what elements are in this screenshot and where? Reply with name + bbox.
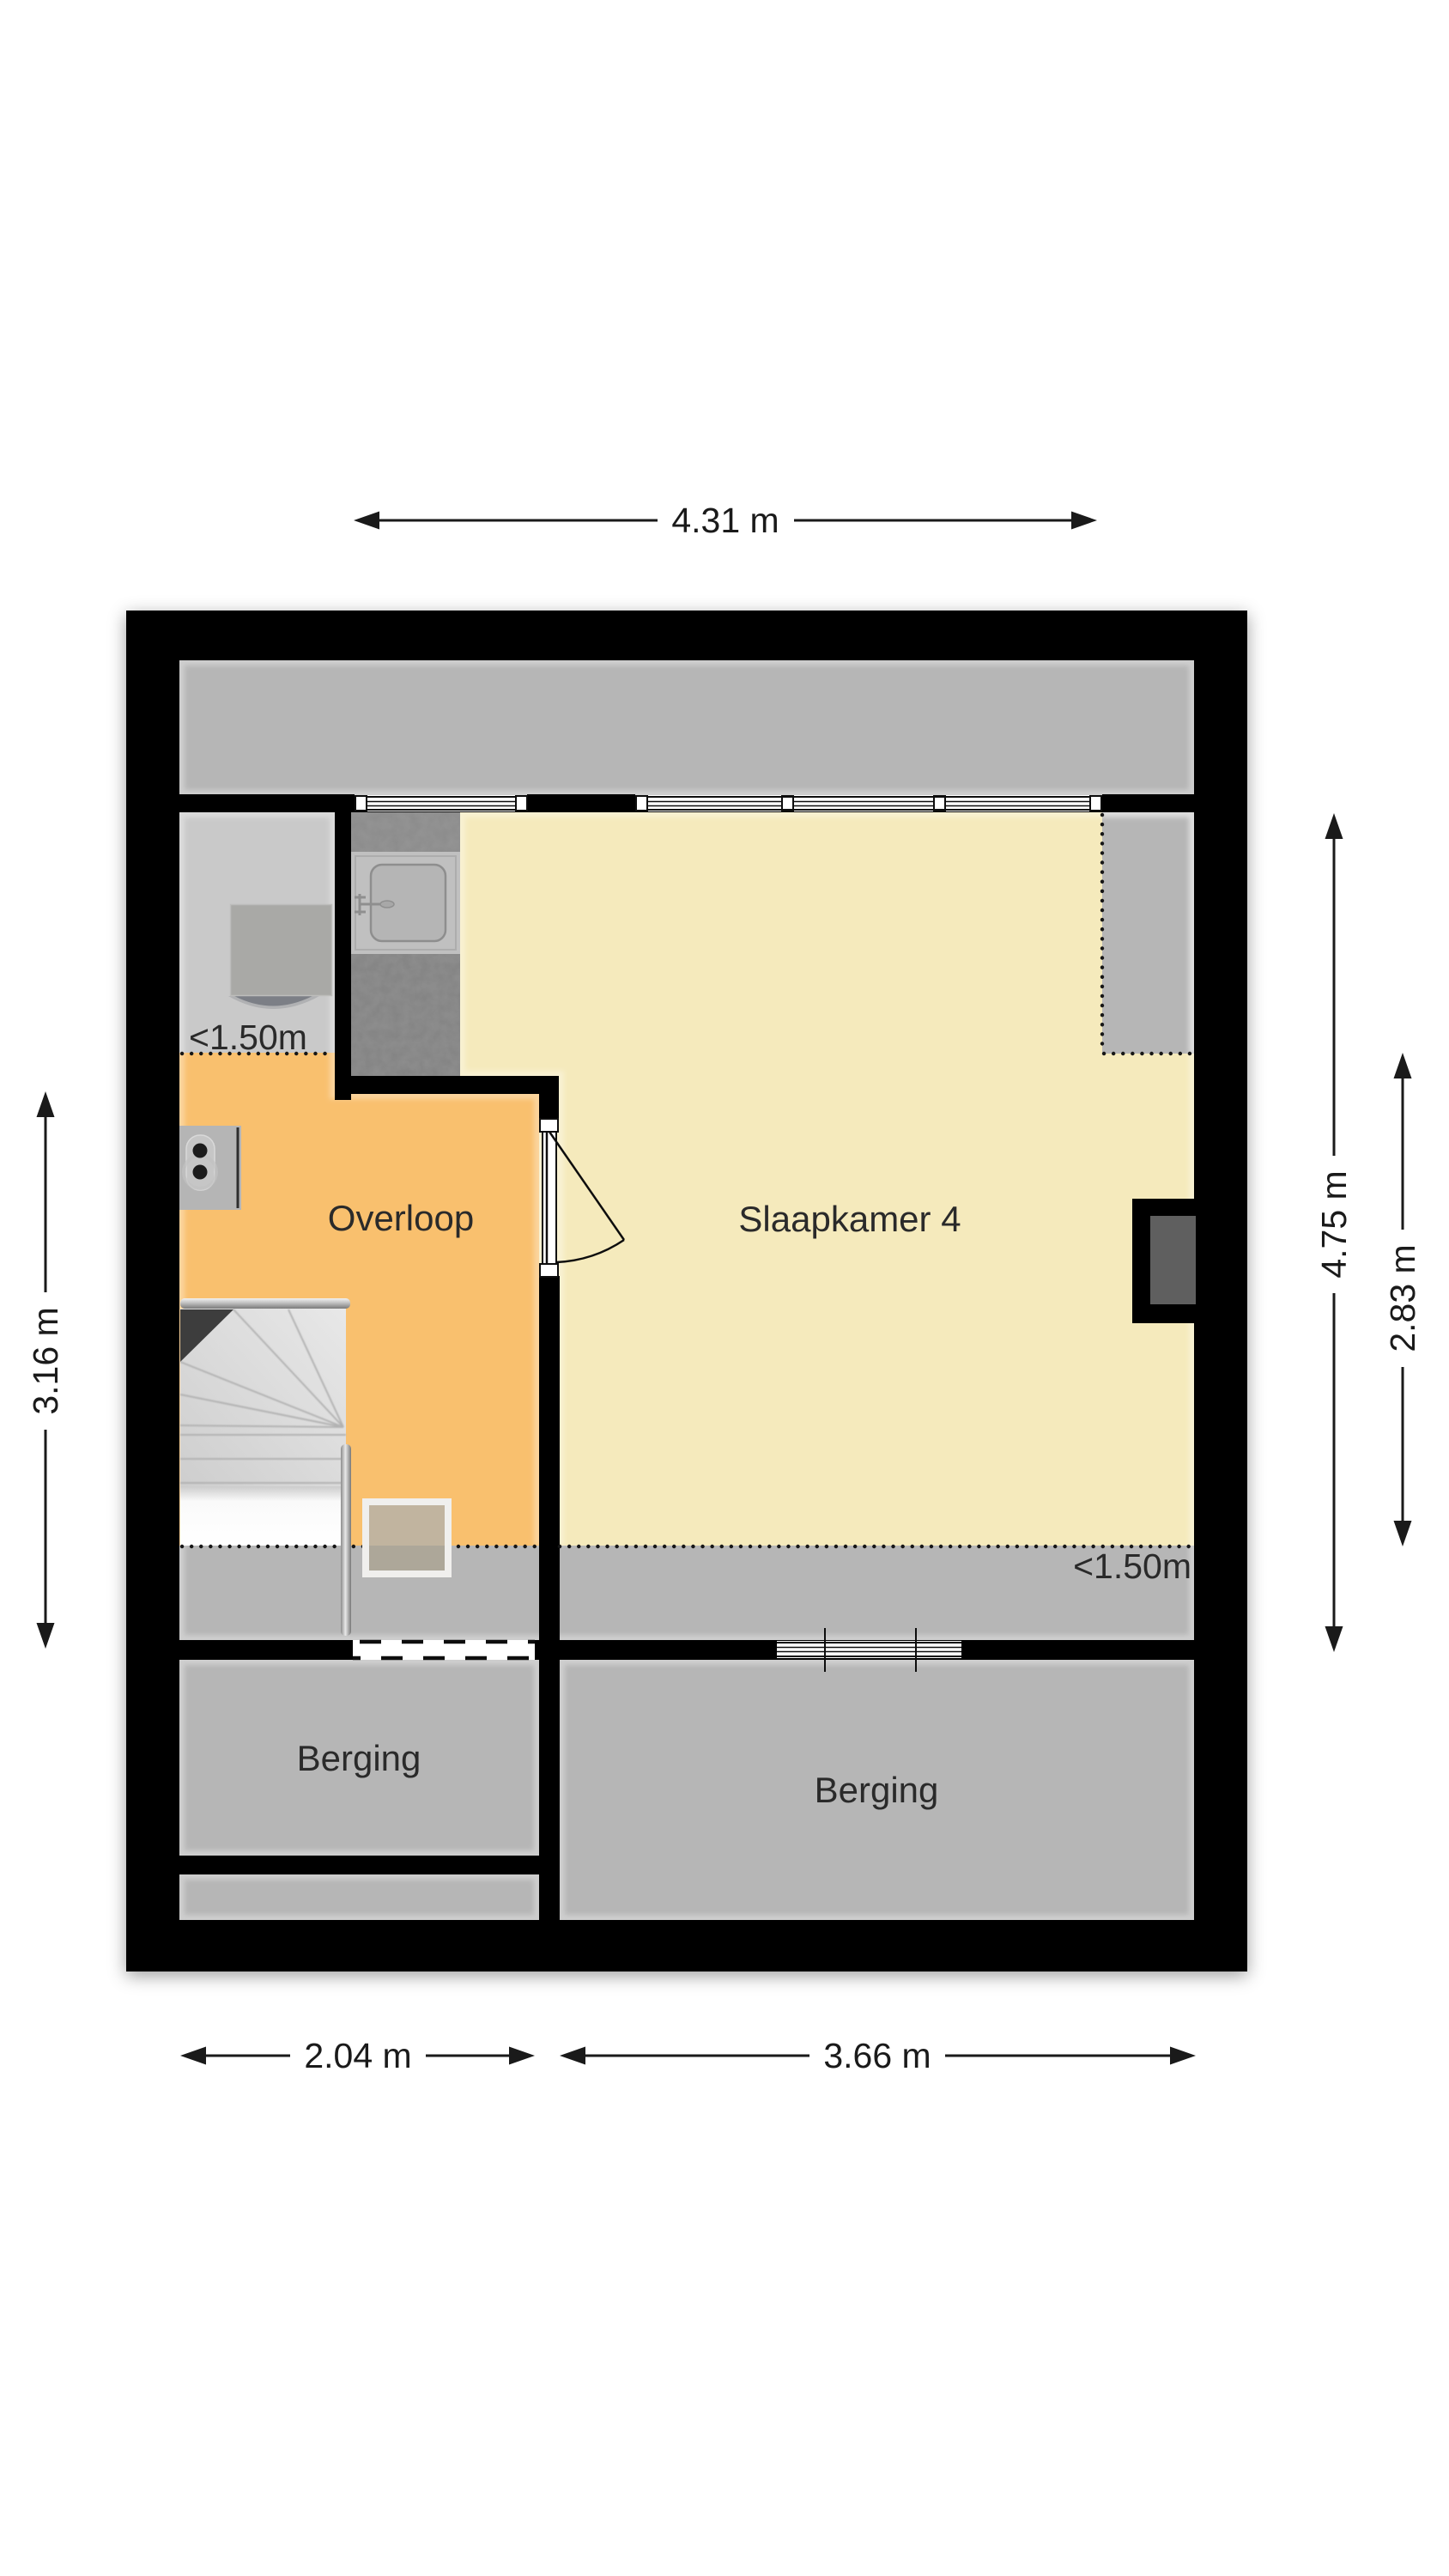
svg-text:Overloop: Overloop bbox=[328, 1198, 474, 1238]
svg-text:4.31 m: 4.31 m bbox=[671, 501, 779, 540]
svg-text:<1.50m: <1.50m bbox=[1073, 1546, 1191, 1586]
svg-text:4.75 m: 4.75 m bbox=[1314, 1170, 1354, 1278]
svg-text:Berging: Berging bbox=[815, 1770, 939, 1810]
svg-text:3.66 m: 3.66 m bbox=[823, 2036, 931, 2075]
svg-text:Berging: Berging bbox=[297, 1738, 421, 1778]
svg-text:<1.50m: <1.50m bbox=[189, 1018, 307, 1057]
svg-text:2.83 m: 2.83 m bbox=[1383, 1244, 1422, 1352]
svg-text:2.04 m: 2.04 m bbox=[304, 2036, 411, 2075]
svg-text:3.16 m: 3.16 m bbox=[26, 1307, 65, 1414]
svg-text:Slaapkamer 4: Slaapkamer 4 bbox=[738, 1199, 961, 1239]
